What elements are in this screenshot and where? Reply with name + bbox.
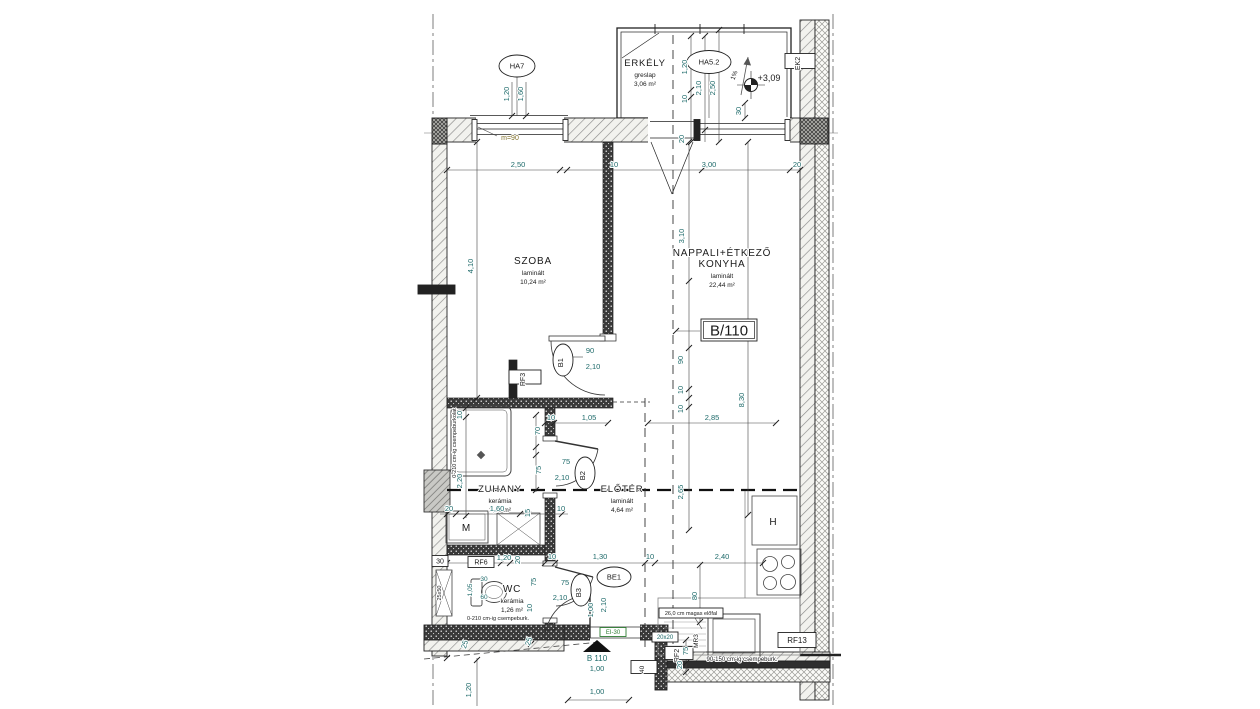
dim-label: 30 [480, 576, 488, 583]
dim-label: 10 [676, 386, 685, 394]
left-wall-stub [418, 285, 455, 294]
ref-box-label: 26,0 cm magas előfal [665, 611, 717, 617]
dim-label: 1,00 [590, 687, 605, 696]
room-label: WCkerámia1,26 m² [500, 584, 524, 614]
dim-label: 1,00 [590, 664, 605, 673]
door-b1-leaf [549, 336, 605, 341]
dim-label: 75 [561, 578, 569, 587]
dim-label: 10 [676, 405, 685, 413]
corner-block-left [432, 118, 447, 144]
dim-label: 0-210 cm-ig csempeburk. [467, 616, 530, 622]
dim-label: 10 [680, 95, 689, 103]
floorplan-svg: ERKÉLYgreslap3,06 m²SZOBAlaminált10,24 m… [0, 0, 1260, 709]
ref-box-rf13: RF13 [778, 633, 816, 648]
ref-box-ek2: EK2 [785, 54, 815, 71]
ref-box-ei30: EI-30 [600, 628, 626, 637]
ref-box-label: RF3 [520, 373, 527, 386]
room-area: 10,24 m² [520, 279, 546, 286]
szoba-partition [603, 142, 613, 334]
window-ha7 [470, 116, 568, 144]
floorplan-canvas: ERKÉLYgreslap3,06 m²SZOBAlaminált10,24 m… [0, 0, 1260, 709]
marker-b3: B3 [571, 574, 591, 606]
room-finish: laminált [522, 270, 545, 277]
dim-label: 75 [562, 457, 570, 466]
dim-label: 2,65 [676, 485, 685, 500]
dim-label: 2,10 [553, 593, 568, 602]
kitchen-south-band3 [667, 668, 830, 682]
ref-box-label: RF13 [787, 636, 807, 645]
marker-be1: BE1 [597, 567, 631, 587]
dim-label: m=90 [501, 135, 519, 142]
dim-label: 20 [513, 556, 522, 564]
room-area: 1,26 m² [501, 607, 524, 614]
dim-label: 1,20 [497, 553, 512, 562]
dim-label: 15 [523, 509, 532, 517]
marker-b2: B2 [575, 457, 595, 489]
dim-label: 1,05 [582, 413, 597, 422]
ref-box-rf3: RF3 [509, 370, 541, 386]
room-name: KONYHA [698, 259, 745, 270]
ref-box-label: 20x20 [657, 635, 674, 641]
room-finish: kerámia [500, 598, 524, 605]
dim-label: 2,50 [511, 160, 526, 169]
corner-block-right [800, 118, 828, 144]
room-name: ZUHANY [478, 484, 522, 495]
dim-label: 60 [480, 594, 488, 601]
dim-label: 10 [557, 504, 565, 513]
door-cap [543, 436, 557, 441]
dim-label: 90 [676, 356, 685, 364]
dim-label: 2,10 [586, 362, 601, 371]
dim-label: 10 [525, 604, 534, 612]
ref-box-label: B/110 [710, 322, 748, 339]
marker-label: B1 [556, 358, 565, 367]
marker-ha5.2: HA5.2 [687, 51, 731, 74]
dim-label: 0-210 cm-ig csempeburkolat [452, 408, 458, 478]
ref-box-label: RF6 [474, 560, 487, 567]
dim-label: 1,20 [464, 683, 473, 698]
room-finish: laminált [611, 498, 634, 505]
dim-label: 8,30 [737, 393, 746, 408]
dim-label: 2,85 [705, 413, 720, 422]
dim-label: 70 [533, 427, 542, 435]
dim-label: 10 [646, 552, 654, 561]
ref-box-label: 40 [639, 665, 646, 673]
dim-label: 1,20 [680, 60, 689, 75]
dim-label: 4,10 [466, 259, 475, 274]
dim-label: 20 [675, 661, 684, 669]
marker-ha7: HA7 [499, 55, 535, 77]
dim-label: 1,60 [516, 87, 525, 102]
dim-label: 25x50 [437, 586, 443, 601]
dim-label: 90 [586, 346, 594, 355]
dim-label: B 110 [587, 654, 608, 663]
ref-box-label: EI-30 [606, 630, 621, 636]
ref-box-b110: B/110 [701, 319, 757, 341]
room-name: NAPPALI+ÉTKEZŐ [673, 245, 772, 259]
dim-label: 10 [548, 552, 556, 561]
dim-label: +3,09 [758, 73, 781, 83]
dim-label: M [462, 523, 470, 534]
dim-label: 10 [547, 413, 555, 422]
room-name: WC [503, 584, 521, 595]
dim-label: 1,30 [593, 552, 608, 561]
ref-box-20x20: 20x20 [652, 632, 678, 642]
dim-label: 2,50 [708, 81, 717, 96]
dim-label: 20 [793, 160, 801, 169]
dim-label: H [769, 517, 776, 528]
dim-label: 90-150 cm-ig csempeburk. [706, 657, 777, 663]
dim-label: 75 [681, 647, 690, 655]
dim-label: 10 [610, 160, 618, 169]
dim-label: 2,10 [599, 598, 608, 613]
dim-label: 2,10 [694, 81, 703, 96]
wc-south-wall [424, 625, 564, 640]
marker-label: B3 [574, 588, 583, 597]
dim-label: 75 [534, 466, 543, 474]
marker-label: BE1 [607, 573, 621, 582]
room-name: SZOBA [514, 256, 552, 267]
entry-wall-left [564, 625, 590, 640]
marker-label: HA5.2 [699, 58, 720, 67]
dim-label: 3,00 [702, 160, 717, 169]
background [0, 0, 1260, 709]
dim-label: 80 [690, 592, 699, 600]
room-finish: greslap [634, 72, 656, 79]
room-name: ELŐTÉR [601, 484, 644, 495]
ref-box-label: RF2 [674, 649, 681, 662]
room-area: 22,44 m² [709, 282, 735, 289]
dim-label: 75 [529, 578, 538, 586]
ref-box-label: 30 [436, 559, 444, 566]
dim-label: 2,10 [555, 473, 570, 482]
dim-label: MR3 [693, 634, 700, 648]
room-area: 4,64 m² [611, 507, 634, 514]
marker-label: B2 [578, 471, 587, 480]
ref-box-260cmmagaselfal: 26,0 cm magas előfal [659, 608, 723, 618]
marker-b1: B1 [553, 344, 573, 376]
dim-label: 1,05 [467, 583, 474, 596]
ref-box-rf6: RF6 [468, 557, 494, 568]
dim-label: 30 [734, 107, 743, 115]
marker-label: HA7 [510, 62, 525, 71]
ref-box-30: 30 [432, 556, 448, 567]
dim-label: 2,40 [715, 552, 730, 561]
door-cap [543, 493, 557, 498]
dim-label: 1,60 [490, 504, 505, 513]
room-name: ERKÉLY [624, 58, 666, 69]
dim-label: 3,10 [677, 229, 686, 244]
room-area: 3,06 m² [634, 81, 657, 88]
room-finish: laminált [711, 273, 734, 280]
ref-box-40: 40 [631, 661, 657, 674]
wc-south-band [424, 640, 564, 651]
dim-label: 20 [677, 135, 686, 143]
dim-label: 1,20 [502, 87, 511, 102]
dim-label: 1,00 [586, 603, 595, 618]
dim-label: 20 [445, 504, 453, 513]
ref-box-label: EK2 [795, 57, 802, 70]
